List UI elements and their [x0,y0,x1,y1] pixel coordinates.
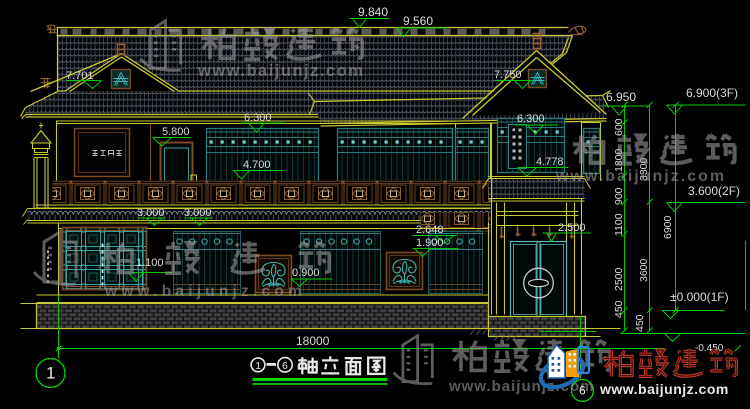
svg-text:3.000: 3.000 [137,207,165,219]
svg-text:900: 900 [613,187,625,205]
svg-text:1.100: 1.100 [136,257,164,269]
svg-text:7.701: 7.701 [66,70,94,82]
svg-text:9.840: 9.840 [358,5,388,19]
svg-text:4.778: 4.778 [536,156,564,168]
svg-text:18000: 18000 [296,334,330,348]
svg-text:5.800: 5.800 [162,126,190,138]
svg-text:3600: 3600 [638,258,650,282]
svg-text:www.baijunjz.com: www.baijunjz.com [197,62,364,80]
svg-text:±0.000(1F): ±0.000(1F) [670,290,729,304]
svg-text:2.500: 2.500 [558,222,586,234]
svg-text:www.baijunjz.com: www.baijunjz.com [104,283,306,300]
svg-text:1100: 1100 [613,213,625,236]
svg-text:6.900(3F): 6.900(3F) [686,86,738,100]
svg-text:7.750: 7.750 [494,69,522,81]
svg-text:450: 450 [613,300,625,318]
svg-text:6.950: 6.950 [606,90,636,104]
svg-text:6: 6 [282,360,288,372]
svg-text:www.baijunjz.com: www.baijunjz.com [555,168,726,185]
svg-text:450: 450 [634,314,646,332]
svg-text:6900: 6900 [662,215,674,239]
svg-text:2.648: 2.648 [416,224,444,236]
svg-text:-0.450: -0.450 [695,343,724,354]
svg-text:3.000: 3.000 [184,207,212,219]
svg-text:6.300: 6.300 [244,112,272,124]
svg-text:6.300: 6.300 [517,113,545,125]
svg-text:1: 1 [255,360,261,372]
svg-text:1.900: 1.900 [416,237,444,249]
svg-text:4.700: 4.700 [243,159,271,171]
svg-text:6: 6 [579,384,586,398]
svg-text:600: 600 [613,118,625,136]
svg-text:9.560: 9.560 [403,14,433,28]
svg-text:3.600(2F): 3.600(2F) [688,184,740,198]
svg-text:2500: 2500 [613,267,625,291]
svg-text:0.900: 0.900 [292,267,320,279]
svg-text:www.baijunjz.com: www.baijunjz.com [599,381,729,397]
svg-text:1: 1 [46,364,55,383]
